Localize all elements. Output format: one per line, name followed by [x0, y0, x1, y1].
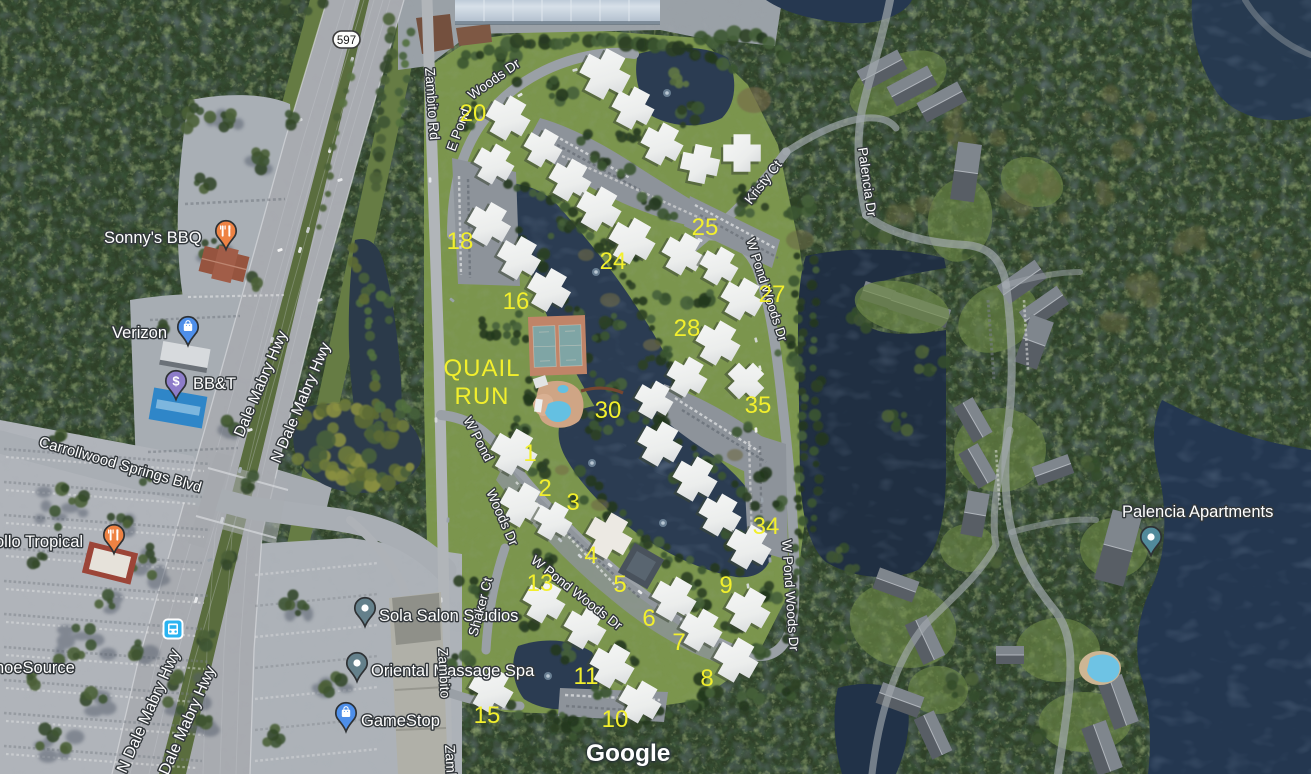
- svg-text:30: 30: [595, 397, 622, 424]
- svg-text:11: 11: [574, 663, 599, 690]
- svg-text:6: 6: [642, 605, 655, 632]
- svg-text:Sola Salon Studios: Sola Salon Studios: [379, 607, 518, 625]
- svg-text:28: 28: [674, 315, 701, 342]
- svg-text:8: 8: [700, 665, 713, 692]
- svg-text:Zambito: Zambito: [435, 647, 454, 699]
- svg-text:13: 13: [527, 570, 554, 597]
- svg-text:Zamb: Zamb: [442, 744, 460, 774]
- svg-text:hoeSource: hoeSource: [0, 659, 75, 677]
- svg-text:20: 20: [460, 100, 487, 127]
- svg-text:18: 18: [447, 228, 474, 255]
- svg-text:Google: Google: [586, 740, 670, 767]
- svg-text:15: 15: [474, 702, 501, 729]
- svg-text:1: 1: [523, 440, 536, 467]
- svg-text:3: 3: [566, 489, 579, 516]
- svg-text:4: 4: [584, 542, 597, 569]
- svg-text:RUN: RUN: [455, 383, 510, 410]
- svg-text:BB&T: BB&T: [193, 375, 236, 393]
- svg-text:QUAIL: QUAIL: [443, 355, 520, 382]
- svg-text:16: 16: [503, 288, 530, 315]
- svg-text:7: 7: [672, 629, 685, 656]
- svg-text:24: 24: [600, 248, 627, 275]
- svg-text:34: 34: [753, 513, 780, 540]
- svg-text:5: 5: [613, 571, 626, 598]
- svg-text:597: 597: [337, 35, 356, 47]
- svg-text:Sonny's BBQ: Sonny's BBQ: [104, 229, 202, 247]
- svg-text:$: $: [172, 374, 180, 389]
- svg-text:ollo Tropical: ollo Tropical: [0, 533, 83, 551]
- svg-text:10: 10: [602, 706, 629, 733]
- svg-text:Palencia Apartments: Palencia Apartments: [1122, 503, 1273, 521]
- svg-text:9: 9: [719, 572, 732, 599]
- svg-text:35: 35: [745, 392, 772, 419]
- svg-text:Verizon: Verizon: [112, 324, 167, 342]
- svg-text:25: 25: [692, 214, 719, 241]
- svg-text:GameStop: GameStop: [361, 712, 440, 730]
- svg-text:27: 27: [759, 281, 786, 308]
- svg-text:2: 2: [538, 475, 551, 502]
